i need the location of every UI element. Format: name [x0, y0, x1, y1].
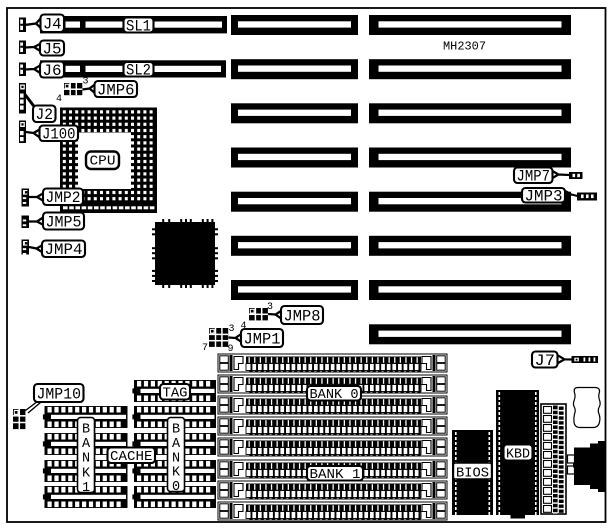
svg-text:A: A: [172, 437, 181, 452]
svg-text:7: 7: [202, 343, 208, 354]
svg-text:J100: J100: [42, 126, 76, 144]
svg-text:CPU: CPU: [90, 154, 116, 170]
svg-text:K: K: [172, 466, 181, 481]
svg-text:J2: J2: [36, 106, 54, 124]
svg-text:BANK 1: BANK 1: [310, 468, 361, 483]
svg-text:1: 1: [82, 481, 90, 496]
svg-text:BIOS: BIOS: [456, 467, 489, 482]
svg-text:SL2: SL2: [126, 62, 151, 80]
svg-text:JMP10: JMP10: [37, 385, 82, 403]
svg-text:JMP2: JMP2: [46, 189, 81, 207]
svg-text:JMP1: JMP1: [244, 330, 281, 348]
svg-text:K: K: [82, 466, 91, 481]
svg-text:4: 4: [56, 94, 62, 105]
svg-text:BANK 0: BANK 0: [310, 388, 359, 403]
svg-text:9: 9: [228, 344, 234, 355]
svg-text:CACHE: CACHE: [110, 449, 153, 465]
svg-text:JMP7: JMP7: [517, 168, 551, 186]
svg-text:N: N: [82, 452, 90, 467]
svg-text:J5: J5: [43, 40, 62, 58]
svg-text:J4: J4: [43, 16, 62, 34]
svg-text:JMP8: JMP8: [284, 307, 321, 325]
svg-text:KBD: KBD: [506, 446, 530, 462]
svg-text:TAG: TAG: [163, 386, 188, 402]
svg-text:J6: J6: [43, 62, 62, 80]
svg-text:3: 3: [83, 77, 89, 88]
svg-text:MH2307: MH2307: [443, 41, 486, 54]
svg-text:3: 3: [229, 324, 235, 335]
svg-text:J7: J7: [535, 352, 556, 370]
svg-text:JMP3: JMP3: [525, 188, 563, 206]
svg-text:JMP4: JMP4: [45, 241, 83, 259]
svg-text:JMP6: JMP6: [97, 81, 135, 99]
svg-text:SL1: SL1: [126, 17, 151, 35]
svg-text:JMP5: JMP5: [46, 213, 82, 231]
svg-text:B: B: [82, 423, 90, 438]
svg-text:N: N: [172, 451, 180, 466]
svg-text:B: B: [172, 423, 180, 438]
svg-text:0: 0: [172, 480, 180, 495]
svg-text:A: A: [82, 437, 91, 452]
svg-text:3: 3: [267, 302, 273, 313]
